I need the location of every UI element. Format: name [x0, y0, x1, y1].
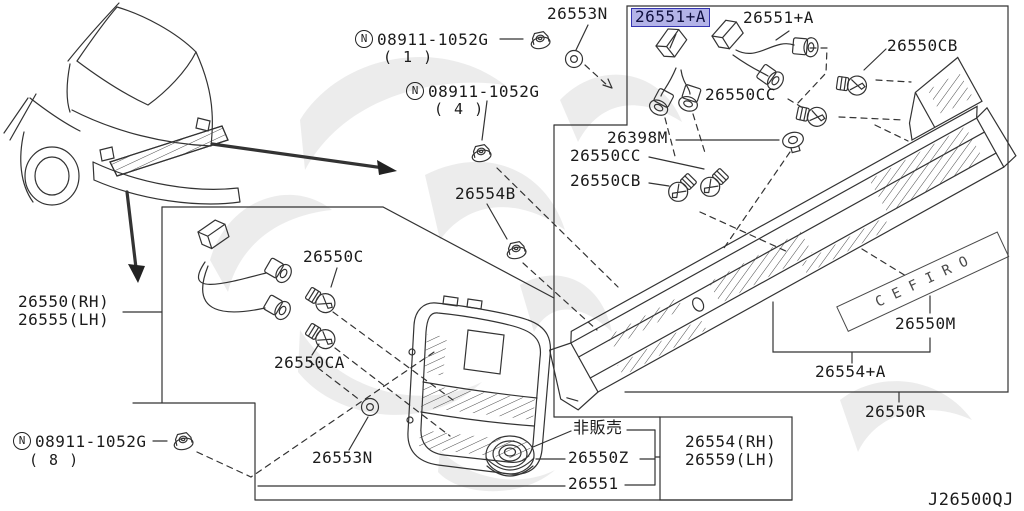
socket-26398m-icon [781, 130, 806, 154]
part-label-26550rh[interactable]: 26550(RH) [18, 294, 109, 311]
arrow-to-lamp [127, 192, 136, 268]
part-label-26550r[interactable]: 26550R [865, 404, 926, 421]
bulb-26550cc-icon [697, 166, 731, 200]
part-label-26550c[interactable]: 26550C [303, 249, 364, 266]
bulb-26550cb-icon [836, 73, 868, 96]
part-label-26550cb[interactable]: 26550CB [570, 173, 641, 190]
part-label-26398m[interactable]: 26398M [607, 130, 668, 147]
panel-mount-hole [690, 296, 706, 313]
bulb-socket-icon [262, 293, 293, 322]
diagram-line-art [0, 0, 1024, 511]
nut-icon [505, 241, 527, 261]
bulb-socket-icon [677, 84, 703, 114]
harness-connector-icon [709, 16, 747, 53]
fastener-callout-1[interactable]: N 08911-1052G [355, 30, 488, 49]
part-label-26551[interactable]: 26551 [568, 476, 619, 493]
part-label-26551a[interactable]: 26551+A [743, 10, 814, 27]
part-label-26555lh[interactable]: 26555(LH) [18, 312, 109, 329]
part-label-26550cb-top[interactable]: 26550CB [887, 38, 958, 55]
part-label-26550m[interactable]: 26550M [895, 316, 956, 333]
part-label-26554a[interactable]: 26554+A [815, 364, 886, 381]
lamp-harness-drawing [196, 218, 338, 353]
part-label-26553n-top[interactable]: 26553N [547, 6, 608, 23]
part-label-26550cc[interactable]: 26550CC [570, 148, 641, 165]
nut-icon [529, 31, 551, 51]
arrow-to-assembly [212, 144, 384, 168]
not-for-sale-note: 非販売 [573, 420, 623, 437]
nut-icon [172, 432, 194, 452]
upper-harness-drawings [647, 16, 868, 205]
fastener-qty: ( 8 ) [29, 451, 79, 469]
part-label-26550ca[interactable]: 26550CA [274, 355, 345, 372]
bulb-socket-icon [792, 36, 819, 57]
bulb-socket-icon [263, 256, 294, 285]
part-label-26550cc-top[interactable]: 26550CC [705, 87, 776, 104]
fastener-qty: ( 1 ) [383, 48, 433, 66]
bulb-26550cb-icon [665, 171, 699, 205]
grommet-26553n-icon [566, 51, 583, 68]
backup-lens-window [464, 330, 504, 374]
n-symbol-icon: N [13, 432, 31, 450]
drawing-code: J26500QJ [928, 490, 1014, 510]
fastener-qty: ( 4 ) [434, 100, 484, 118]
panel-end-piece [888, 57, 982, 140]
fastener-code: 08911-1052G [377, 30, 488, 49]
part-label-26554b[interactable]: 26554B [455, 186, 516, 203]
bulb-26550cc-icon [795, 103, 828, 128]
part-label-26551a-highlighted[interactable]: 26551+A [631, 8, 710, 27]
part-label-26554rh[interactable]: 26554(RH) [685, 434, 776, 451]
part-label-26559lh[interactable]: 26559(LH) [685, 452, 776, 469]
car-illustration [4, 3, 240, 205]
fastener-code: 08911-1052G [428, 82, 539, 101]
fastener-callout-4[interactable]: N 08911-1052G [406, 82, 539, 101]
nut-icon [470, 144, 492, 164]
harness-connector-icon [652, 24, 690, 62]
part-label-26550z[interactable]: 26550Z [568, 450, 629, 467]
part-label-26553n-bottom[interactable]: 26553N [312, 450, 373, 467]
n-symbol-icon: N [406, 82, 424, 100]
tail-lamp-drawing [407, 296, 550, 474]
n-symbol-icon: N [355, 30, 373, 48]
parts-diagram-page: 26553N 26551+A 26551+A 26550CB 26550CC 2… [0, 0, 1024, 511]
fastener-code: 08911-1052G [35, 432, 146, 451]
fastener-callout-8[interactable]: N 08911-1052G [13, 432, 146, 451]
